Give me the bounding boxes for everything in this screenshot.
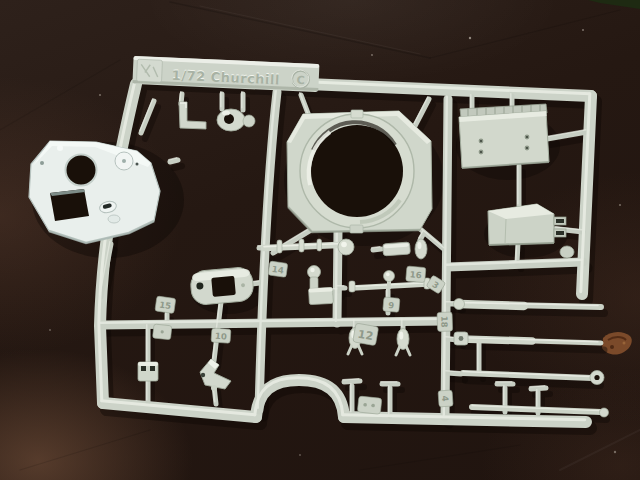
periscope-part bbox=[308, 266, 334, 305]
svg-text:18: 18 bbox=[439, 316, 449, 328]
green-object-corner bbox=[588, 0, 640, 9]
sprue-photo-rendering: 1/72 Churchill 1/72 Churchill C bbox=[0, 0, 640, 480]
part-number-tag: 18 bbox=[437, 312, 453, 332]
part-number-tag: 14 bbox=[268, 261, 288, 277]
clamp-block-part bbox=[138, 362, 158, 381]
part-number-tag: 16 bbox=[406, 266, 426, 283]
cupola-base-part bbox=[190, 266, 255, 305]
svg-text:C: C bbox=[296, 74, 305, 87]
svg-text:15: 15 bbox=[159, 299, 172, 311]
part-number-tag: 9 bbox=[383, 297, 400, 312]
svg-text:14: 14 bbox=[271, 264, 284, 276]
paddle-part bbox=[383, 242, 411, 256]
svg-text:10: 10 bbox=[215, 331, 228, 342]
svg-text:16: 16 bbox=[409, 269, 422, 280]
turret-roof-part bbox=[29, 141, 160, 243]
ejector-tag bbox=[357, 396, 382, 414]
svg-text:9: 9 bbox=[388, 300, 395, 310]
tow-rod-part bbox=[454, 332, 601, 345]
part-number-tag: 15 bbox=[155, 296, 176, 313]
extinguisher-part-2 bbox=[396, 329, 410, 356]
part-number-tag: 4 bbox=[438, 390, 453, 407]
maker-logo-emboss bbox=[137, 59, 163, 82]
part-number-tag: 10 bbox=[211, 328, 231, 343]
svg-text:12: 12 bbox=[357, 328, 374, 343]
gun-barrel-rod-part bbox=[454, 299, 602, 310]
bullet-part bbox=[415, 239, 427, 259]
photo-scene: 1/72 Churchill 1/72 Churchill C bbox=[0, 0, 640, 480]
bracket-hook-part bbox=[179, 102, 206, 129]
engine-deck-part bbox=[459, 104, 549, 168]
mount-bracket-part bbox=[200, 359, 231, 391]
ejector-tag bbox=[153, 324, 172, 340]
part-number-tag: 12 bbox=[353, 323, 379, 346]
svg-text:4: 4 bbox=[440, 395, 450, 402]
turret-ring-plate-part bbox=[287, 110, 432, 233]
